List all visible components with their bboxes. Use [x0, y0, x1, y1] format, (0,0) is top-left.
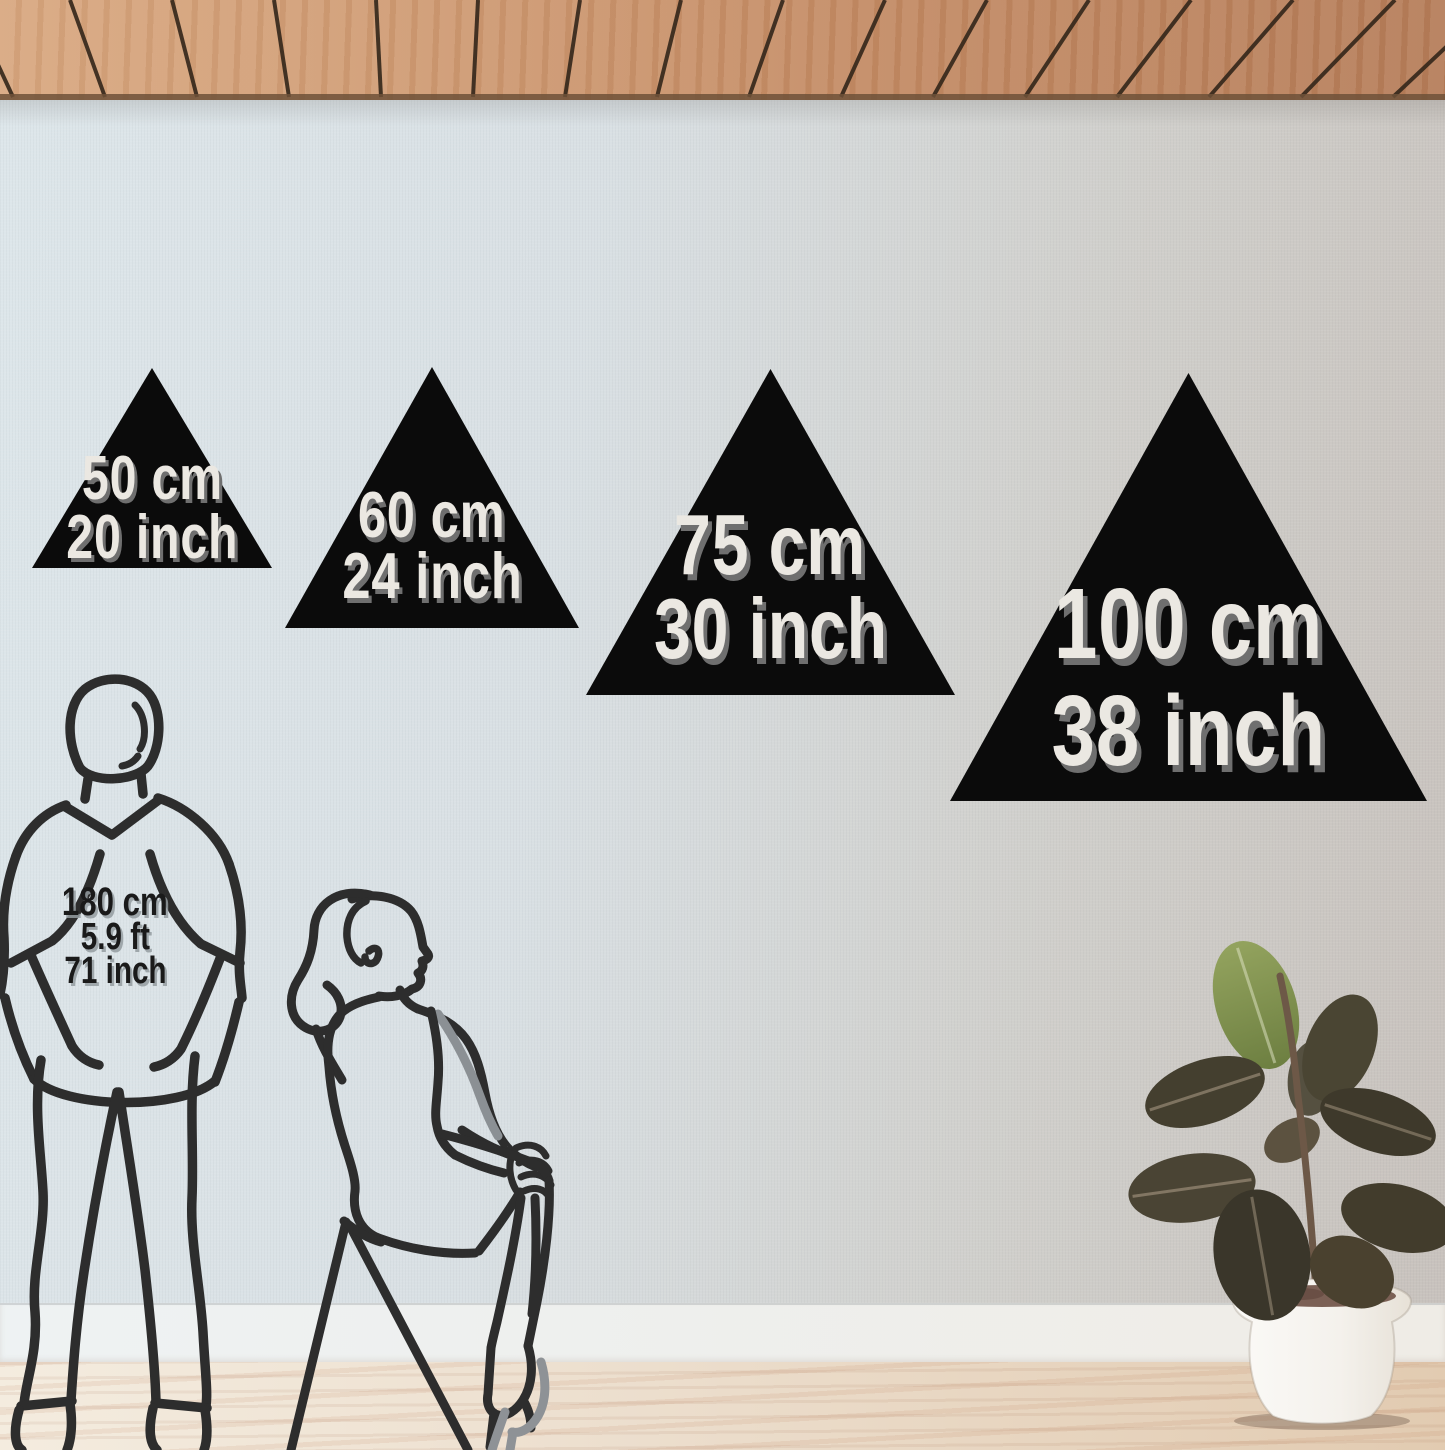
man-trouser-cuffs	[21, 1401, 207, 1408]
man-right-leg	[192, 1056, 207, 1406]
height-feet: 5.9 ft	[80, 920, 149, 954]
woman-shins	[491, 1181, 549, 1348]
man-left-leg	[24, 1060, 43, 1404]
woman-hairline	[347, 901, 379, 964]
person-height-label: 180 cm 5.9 ft 71 inch	[5, 884, 225, 988]
size-guide-scene: 50 cm 20 inch 60 cm 24 inch 75 cm 30 inc…	[0, 0, 1445, 1450]
standing-man-figure	[0, 679, 242, 1450]
line-art-layer	[0, 0, 1445, 1450]
potted-plant	[1124, 930, 1445, 1430]
man-inner-legs	[71, 1092, 156, 1402]
height-inches: 71 inch	[64, 954, 166, 988]
man-shoes	[15, 1404, 206, 1450]
woman-back	[328, 997, 379, 1191]
woman-far-arm	[438, 1014, 498, 1136]
height-metric: 180 cm	[62, 884, 168, 920]
woman-face	[352, 896, 429, 997]
man-ear	[122, 705, 144, 766]
man-collar	[64, 799, 160, 835]
